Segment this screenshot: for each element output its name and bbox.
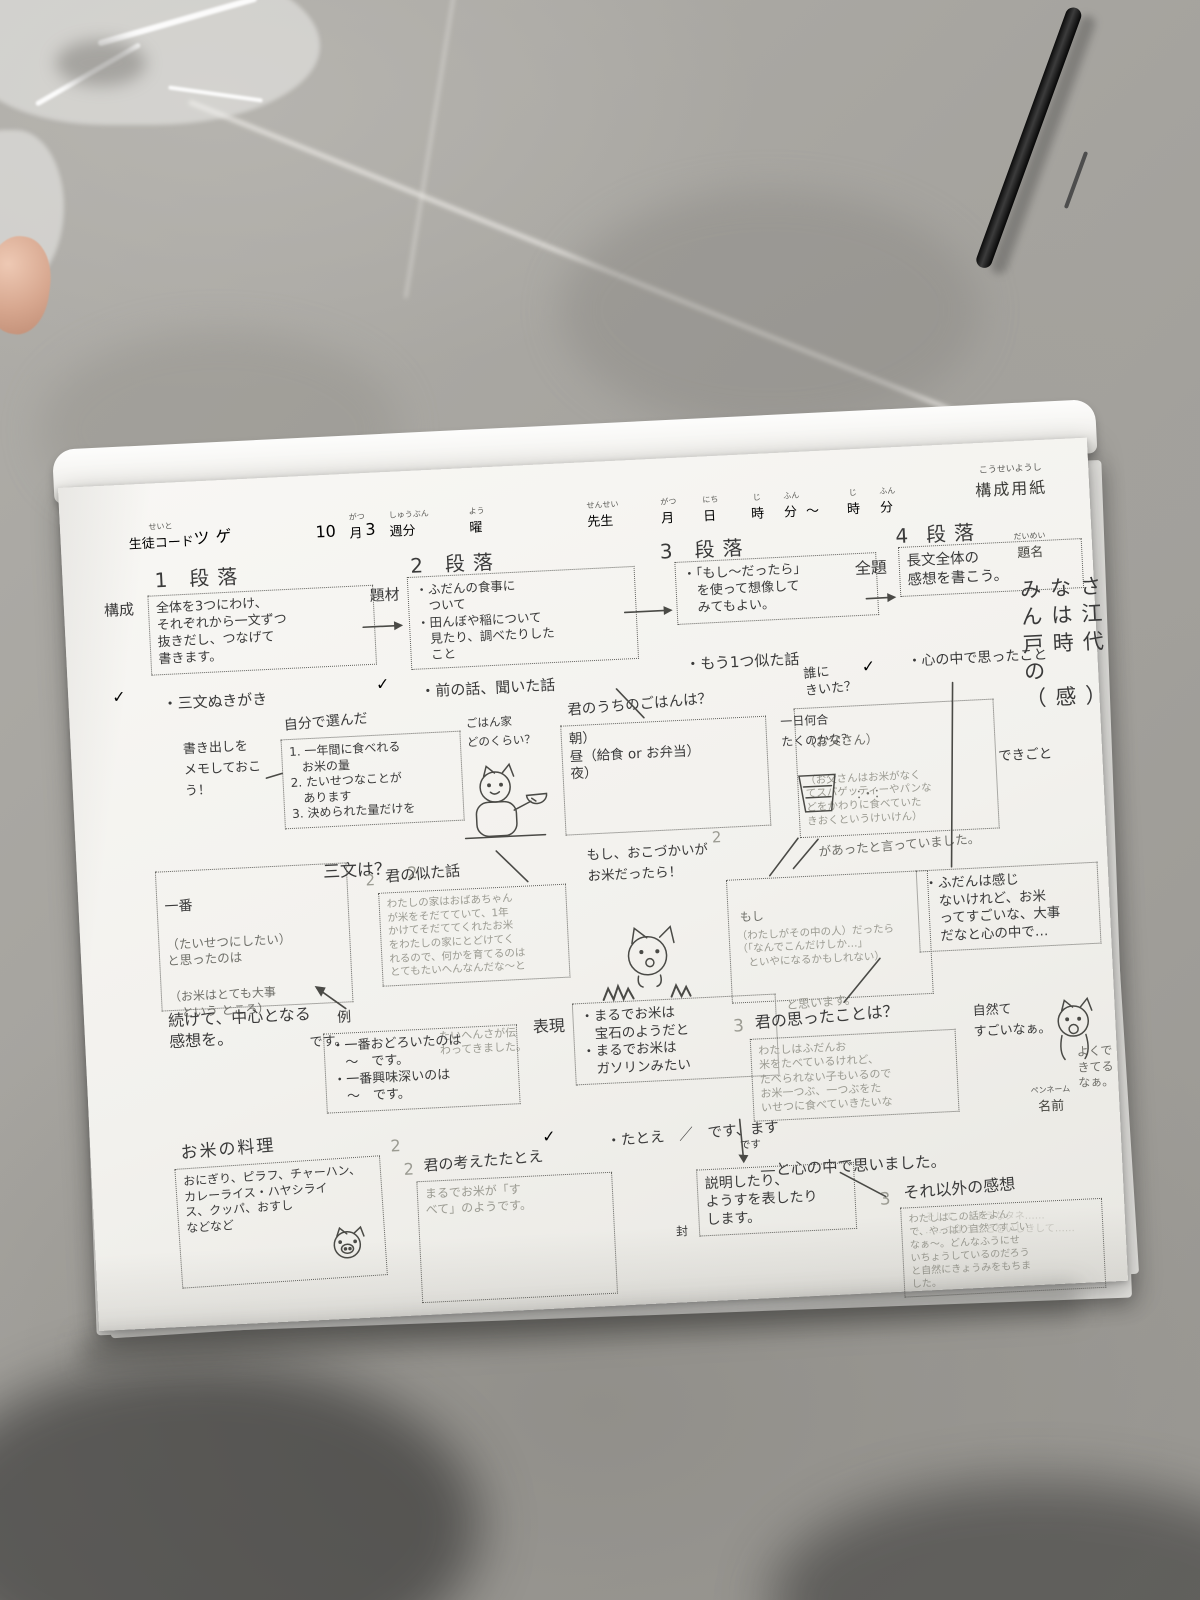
- moshi-circled: もし: [735, 908, 768, 926]
- desu-circled: です: [737, 1136, 765, 1155]
- date-month-label: がつ月: [660, 498, 677, 527]
- check-mark-1: ✓: [112, 687, 126, 707]
- kimi-gohan-label: 君のうちのごはんは？: [567, 690, 713, 721]
- moshi-box-body: （わたしがその中の人）だったら （「なんでこんだけしか…」 といやになるかもしれ…: [736, 921, 924, 971]
- date-day-blank: [678, 524, 704, 525]
- jibun-scribble: [376, 716, 440, 727]
- weekday-blank: [430, 536, 470, 538]
- fuu-circled: 封: [673, 1222, 692, 1242]
- hour2-blank: [825, 517, 847, 518]
- pencil-number-2b: 2: [365, 871, 375, 891]
- paragraph-1-title: 1段落: [154, 563, 246, 593]
- shadow-bottom-right: [770, 1480, 1200, 1600]
- ichiban-line1: 一番: [164, 890, 341, 917]
- pen: [974, 5, 1083, 270]
- hour2-label: じ時: [846, 489, 860, 517]
- check-mark-hyougen: ✓: [542, 1126, 556, 1146]
- time-tilde: 〜: [806, 500, 820, 520]
- student-code-label: せいと生徒コード: [128, 521, 194, 552]
- otosan-box: （お父さん） （お父さんはお米がなく てスパゲッティーやパンな どをかわりに食べ…: [794, 699, 1000, 839]
- form-header: せいと生徒コード ツゲ 10 がつ月 3 しゅうぶん週分 よう曜 せんせい先生 …: [128, 483, 988, 553]
- dare-label: 誰に きいた？: [803, 662, 858, 701]
- rei-circled: 例: [332, 1006, 357, 1029]
- date-month-blank: [636, 526, 662, 527]
- kimi-omotta-box: わたしはふだんお 米をたべているけれど、 たべられない子もいるので お米一つぶ、…: [750, 1029, 960, 1122]
- okome-label: お米の料理: [180, 1135, 277, 1165]
- teacher-blank: [500, 530, 588, 534]
- paragraph-1-box: 全体を3つにわけ、 それぞれから一文ずつ 抜きだし、つなげて 書きます。: [147, 585, 377, 676]
- sorehoka-faint: そして……ようなタネ…… ……つようことをいしきして……: [925, 1209, 1115, 1238]
- moshi-box: もし （わたしがその中の人）だったら （「なんでこんだけしか…」 といやになるか…: [726, 870, 934, 1004]
- fudan-box: ・ふだんは感じ ないけれど、お米 ってすごいな、大事 だなと心の中で…: [916, 862, 1102, 953]
- min1-label: ふん分: [783, 492, 800, 521]
- hour1-label: じ時: [750, 494, 764, 522]
- month-value: 10: [315, 521, 350, 543]
- okome-box: おにぎり、ピラフ、チャーハン、 カレーライス・ハヤシライ ス、クッパ、おすし な…: [174, 1155, 387, 1288]
- jibun-label: 自分で選んだ: [283, 710, 368, 735]
- weekday-label: よう曜: [468, 507, 485, 536]
- paragraph-3-box: ・「もし〜だったら」 を使って想像して みてもよい。: [674, 552, 879, 624]
- marker-stroke-2: [390, 577, 407, 671]
- min1-blank: [765, 520, 785, 521]
- setsumei-box: 説明したり、 ようすを表したり します。: [696, 1162, 857, 1236]
- marker-stroke-hyougen: [553, 1004, 572, 1122]
- form-title: こうせいようし 構成用紙: [974, 464, 1048, 501]
- hyougen-box: ・まるでお米は 宝石のようだと ・まるでお米は ガソリンみたい: [572, 994, 780, 1086]
- pen-shadow: [989, 13, 1098, 276]
- otosan-box-title: （お父さん）: [803, 726, 988, 751]
- pen-clip: [1064, 151, 1088, 209]
- teacher-label: せんせい先生: [586, 501, 619, 530]
- worksheet-paper: せいと生徒コード ツゲ 10 がつ月 3 しゅうぶん週分 よう曜 せんせい先生 …: [58, 438, 1128, 1331]
- dekigoto-label: できごと: [998, 746, 1053, 766]
- pencil-number-2d: 2: [403, 1159, 414, 1180]
- gohan-box: 朝） 昼（給食 or お弁当） 夜）: [560, 716, 771, 836]
- shadow-bottom-left: [0, 1360, 480, 1600]
- yoku-note: よくできてるなぁ。: [1076, 1043, 1123, 1195]
- student-code-value: ツゲ: [193, 523, 298, 549]
- moshi-cloud-bubble: もし、おこづかいが お米だったら！: [586, 837, 744, 1010]
- marble-vein-2: [404, 0, 459, 298]
- tsuzukete-label: 続けて、中心となる 感想を。: [168, 1004, 313, 1053]
- desk-scene: せいと生徒コード ツゲ 10 がつ月 3 しゅうぶん週分 よう曜 せんせい先生 …: [0, 0, 1200, 1600]
- essay-title-vertical: みなさんは江戸時代の（感）: [1020, 573, 1133, 1057]
- plastic-wrap: [0, 0, 320, 125]
- pencil-number-3a: 3: [733, 1015, 745, 1038]
- ichiban-line2: （たいせつにしたい） と思ったのは: [166, 928, 343, 969]
- sorehoka-label: それ以外の感想: [903, 1174, 1016, 1204]
- otosan-box-body: （お父さんはお米がなく てスパゲッティーやパンな どをかわりに食べていた きおく…: [805, 766, 991, 829]
- jibun-box: 1. 一年間に食べれる お米の量 2. たいせつなことが あります 3. 決めら…: [281, 731, 465, 830]
- pencil-number-2c: 2: [711, 828, 721, 848]
- min2-label: ふん分: [879, 487, 896, 516]
- pencil-number-2-okome: 2: [390, 1136, 401, 1157]
- date-day-label: にち日: [702, 496, 719, 525]
- rei-box: ・一番おどろいたのは 〜 です。 ・一番興味深いのは 〜 です。: [323, 1024, 521, 1113]
- plastic-wrap-shadow: [56, 40, 146, 86]
- pencil-number-3b: 3: [879, 1188, 891, 1211]
- cat-rice-bowl-doodle: [462, 763, 548, 839]
- marble-patch: [560, 190, 980, 430]
- kangaeta-label: 君の考えたたとえ: [423, 1147, 544, 1176]
- week-label: しゅうぶん週分: [389, 510, 430, 540]
- kimi-nita-box: わたしの家はおばあちゃん が米をそだてていて、1年 かけてそだててくれたお米 を…: [378, 884, 570, 987]
- paragraph-3-note: ・もう1つ似た話: [685, 650, 800, 675]
- ichiban-box: 一番 （たいせつにしたい） と思ったのは （お米はとても大事 という ところ） …: [155, 862, 354, 1011]
- paragraph-1-note: ・三文ぬきがき: [162, 690, 268, 715]
- kimi-nita-label: 君の似た話: [385, 862, 461, 888]
- paragraph-2-box: ・ふだんの食事に ついて ・田んぼや稲について 見たり、調べたりした こと: [407, 566, 639, 670]
- week-value: 3: [365, 519, 390, 541]
- hour1-blank: [730, 522, 752, 523]
- marker-stroke-1: [126, 594, 142, 682]
- daimei-label: だいめい 題名: [1013, 532, 1046, 561]
- check-mark-4: ✓: [861, 656, 875, 676]
- min2-blank: [860, 516, 880, 517]
- check-mark-2: ✓: [375, 674, 389, 694]
- month-label: がつ月: [349, 513, 366, 542]
- kangaeta-box: まるでお米が「す べて」のようです。: [416, 1172, 618, 1303]
